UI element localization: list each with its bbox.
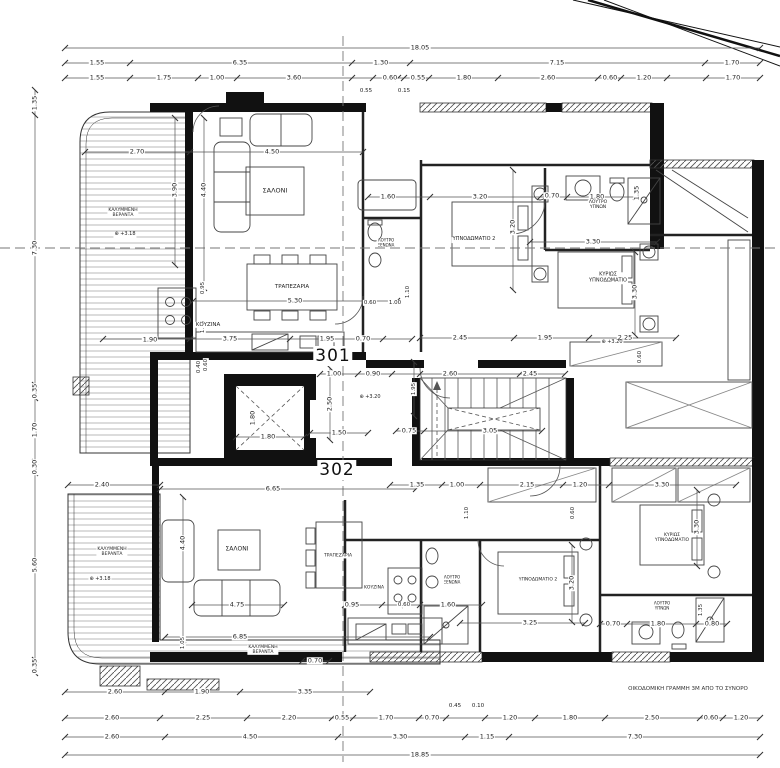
dim-label: 0.95	[344, 601, 360, 608]
dim-label: 2.70	[129, 148, 145, 155]
dim-label: 1.70	[725, 74, 741, 81]
dim-label: 2.25	[195, 714, 211, 721]
dim-label: 4.75	[229, 601, 245, 608]
dim-label: 0.60	[382, 74, 398, 81]
room-label-bedroom2-301: ΥΠΝΟΔΩΜΑΤΙΟ 2	[452, 237, 497, 243]
dim-label: 0.95	[200, 281, 206, 295]
dim-label: 1.00	[209, 74, 225, 81]
toilet	[426, 548, 438, 564]
dim-label: 1.00	[388, 300, 402, 306]
dim-label: 2.60	[540, 74, 556, 81]
dim-label: 1.80	[456, 74, 472, 81]
dim-label: 3.20	[509, 219, 516, 235]
dim-label: 2.60	[104, 714, 120, 721]
room-label-trapezaria-302: ΤΡΑΠΕΖΑΡΙΑ	[323, 553, 353, 558]
dim-label: 0.70	[307, 657, 323, 664]
dim-label: 3.35	[297, 688, 313, 695]
side-table	[220, 118, 242, 136]
room-label-trapezaria-301: ΤΡΑΠΕΖΑΡΙΑ	[274, 284, 310, 290]
dim-label: 3.60	[286, 74, 302, 81]
dim-label: 1.95	[319, 335, 335, 342]
dim-label: 0.70	[544, 192, 560, 199]
nightstand	[643, 318, 655, 330]
room-label-kouzina-302: ΚΟΥΖΙΝΑ	[363, 585, 385, 590]
dim-label: 3.30	[693, 519, 700, 535]
dim-label: 2.60	[442, 370, 458, 377]
dim-label: 3.30	[585, 238, 601, 245]
bidet	[369, 253, 381, 267]
dim-label: 0.30	[31, 459, 38, 475]
dim-label: 3.30	[654, 481, 670, 488]
dim-label: 1.75	[156, 74, 172, 81]
nightstand	[580, 614, 592, 626]
dim-label: 0.90	[365, 370, 381, 377]
dim-label: 3.75	[222, 335, 238, 342]
room-label-bath-301: ΛΟΥΤΡΟ ΥΠΝΩΝ	[588, 200, 608, 210]
dim-label: 1.10	[405, 285, 411, 299]
dim-label: 0.70	[424, 714, 440, 721]
level-marker: ⊕ +3.20	[600, 340, 623, 346]
veranda-deck-lower	[68, 494, 440, 664]
unit-number-301: 301	[313, 346, 352, 366]
dim-label: 0.10	[471, 703, 485, 709]
dim-label: 2.50	[644, 714, 660, 721]
dim-label: 2.15	[519, 481, 535, 488]
dim-label: 3.30	[631, 284, 638, 300]
dim-label: 0.60	[570, 506, 576, 520]
dim-label: 3.90	[171, 182, 178, 198]
armchair	[162, 520, 194, 582]
dim-label: 1.35	[633, 185, 640, 201]
dim-label: 1.00	[326, 370, 342, 377]
nightstand	[534, 268, 546, 280]
room-label-bedroom2-302: ΥΠΝΟΔΩΜΑΤΙΟ 2	[518, 577, 558, 582]
room-label-kouzina-301: ΚΟΥΖΙΝΑ	[195, 322, 222, 328]
dim-label: 0.45	[448, 703, 462, 709]
level-marker: ⊕ +3.18	[113, 232, 136, 238]
dim-label: 3.30	[392, 733, 408, 740]
furniture-302	[162, 494, 724, 649]
floor-plan-drawing	[0, 0, 780, 768]
dim-label: 2.40	[94, 481, 110, 488]
dim-label: 1.35	[31, 95, 38, 111]
dim-label: 0.75	[401, 427, 417, 434]
dim-label: 1.10	[464, 506, 470, 520]
dim-label: 0.55	[359, 88, 373, 94]
staircase	[420, 378, 566, 460]
sink	[392, 624, 406, 634]
dim-label: 0.55	[334, 714, 350, 721]
dim-label: 3.20	[472, 193, 488, 200]
dim-label: 7.15	[549, 59, 565, 66]
room-label-wc-301: ΛΟΥΤΡΟ ΞΕΝΩΝΑ	[377, 238, 396, 247]
dim-label: 4.50	[242, 733, 258, 740]
dim-label: 1.80	[249, 410, 256, 426]
dim-label: 1.20	[502, 714, 518, 721]
dim-label: 1.35	[409, 481, 425, 488]
veranda-deck-upper	[80, 112, 190, 453]
room-label-veranda-302b: ΚΑΛΥΜΜΕΝΗ ΒΕΡΑΝΤΑ	[247, 645, 278, 655]
toilet	[672, 622, 684, 638]
dim-label: 1.70	[378, 714, 394, 721]
dim-label: 1.80	[650, 620, 666, 627]
dim-label: 5.60	[31, 557, 38, 573]
dim-label: 6.35	[232, 59, 248, 66]
nightstand	[708, 566, 720, 578]
dim-label: 0.35	[31, 658, 38, 674]
room-label-wc-302: ΛΟΥΤΡΟ ΞΕΝΩΝΑ	[443, 575, 462, 584]
dim-label: 1.95	[411, 382, 417, 396]
sofa	[194, 580, 280, 616]
room-label-master-302: ΚΥΡΙΩΣ ΥΠΝΟΔΩΜΑΤΙΟ	[654, 533, 690, 543]
room-label-salon-302: ΣΑΛΟΝΙ	[225, 547, 250, 554]
dim-label: 4.40	[179, 535, 186, 551]
bench	[728, 240, 750, 380]
unit-number-302: 302	[317, 460, 356, 480]
dim-label: 1.70	[724, 59, 740, 66]
dim-label: 0.70	[605, 620, 621, 627]
dim-label: 1.90	[194, 688, 210, 695]
bed	[452, 202, 532, 266]
dim-label: 2.45	[452, 334, 468, 341]
dim-label: 1.15	[479, 733, 495, 740]
dim-label: 1.95	[537, 334, 553, 341]
dim-label: 3.05	[482, 427, 498, 434]
room-label-veranda-302: ΚΑΛΥΜΜΕΝΗ ΒΕΡΑΝΤΑ	[96, 547, 127, 557]
room-label-veranda-301: ΚΑΛΥΜΜΕΝΗ ΒΕΡΑΝΤΑ	[107, 208, 138, 218]
dim-label: 1.55	[89, 59, 105, 66]
dim-label: 2.20	[281, 714, 297, 721]
dim-label: 6.65	[265, 485, 281, 492]
dim-label: 0.60	[637, 350, 643, 364]
dim-label: 7.30	[31, 240, 38, 256]
sofa	[214, 142, 250, 232]
dim-label: 3.20	[568, 575, 575, 591]
dim-label: 1.35	[698, 603, 704, 617]
dim-label: 5.30	[287, 297, 303, 304]
dim-label: 1.55	[89, 74, 105, 81]
dim-label: 1.90	[142, 336, 158, 343]
dim-label: 7.30	[627, 733, 643, 740]
dim-label: 2.50	[326, 396, 333, 412]
elevator	[224, 374, 316, 462]
dim-label: 0.80	[704, 620, 720, 627]
dim-label: 6.85	[232, 633, 248, 640]
dim-label: 0.55	[410, 74, 426, 81]
dim-label: 1.80	[562, 714, 578, 721]
dim-label: 2.60	[104, 733, 120, 740]
dim-label: 1.20	[636, 74, 652, 81]
dim-label: 1.50	[331, 429, 347, 436]
dim-label: 2.45	[522, 370, 538, 377]
dim-label: 0.15	[397, 88, 411, 94]
dim-label: 1.20	[733, 714, 749, 721]
dim-label: 0.60	[363, 300, 377, 306]
dim-label: 0.35	[31, 383, 38, 399]
dim-label: 4.50	[264, 148, 280, 155]
dim-label: 1.70	[31, 422, 38, 438]
boundary-note: ΟΙΚΟΔΟΜΙΚΗ ΓΡΑΜΜΗ 3Μ ΑΠΟ ΤΟ ΣΥΝΟΡΟ	[628, 686, 748, 692]
dim-label: 4.40	[200, 182, 207, 198]
dim-label: 0.60	[703, 714, 719, 721]
room-label-bath-302: ΛΟΥΤΡΟ ΥΠΝΩΝ	[653, 601, 671, 610]
dim-label: 1.30	[373, 59, 389, 66]
dim-label: 0.60	[602, 74, 618, 81]
level-marker: ⊕ +3.20	[358, 395, 381, 401]
dim-label: 1.60	[440, 601, 456, 608]
dim-label: 0.60	[203, 358, 209, 372]
dim-label: 18.05	[410, 44, 431, 51]
dim-label: 18.85	[410, 751, 431, 758]
floor-plan-page: { "plan": { "apartments": [ {"number": "…	[0, 0, 780, 768]
site-boundary-lines	[573, 0, 780, 66]
room-label-salon-301: ΣΑΛΟΝΙ	[262, 187, 289, 194]
dim-label: 0.40	[196, 360, 202, 374]
dim-label: 0.70	[355, 335, 371, 342]
dim-label: 1.05	[180, 636, 186, 650]
dim-label: 1.20	[572, 481, 588, 488]
level-marker: ⊕ +3.18	[88, 577, 111, 583]
dim-label: 3.25	[522, 619, 538, 626]
dim-label: 1.60	[380, 193, 396, 200]
washbasin	[426, 576, 438, 588]
dim-label: 1.80	[260, 433, 276, 440]
dim-label: 0.60	[397, 602, 411, 608]
toilet	[610, 183, 624, 201]
dim-label: 1.00	[449, 481, 465, 488]
room-label-master-301: ΚΥΡΙΩΣ ΥΠΝΟΔΩΜΑΤΙΟ	[588, 272, 628, 284]
dim-label: 2.60	[107, 688, 123, 695]
bed	[498, 552, 578, 614]
